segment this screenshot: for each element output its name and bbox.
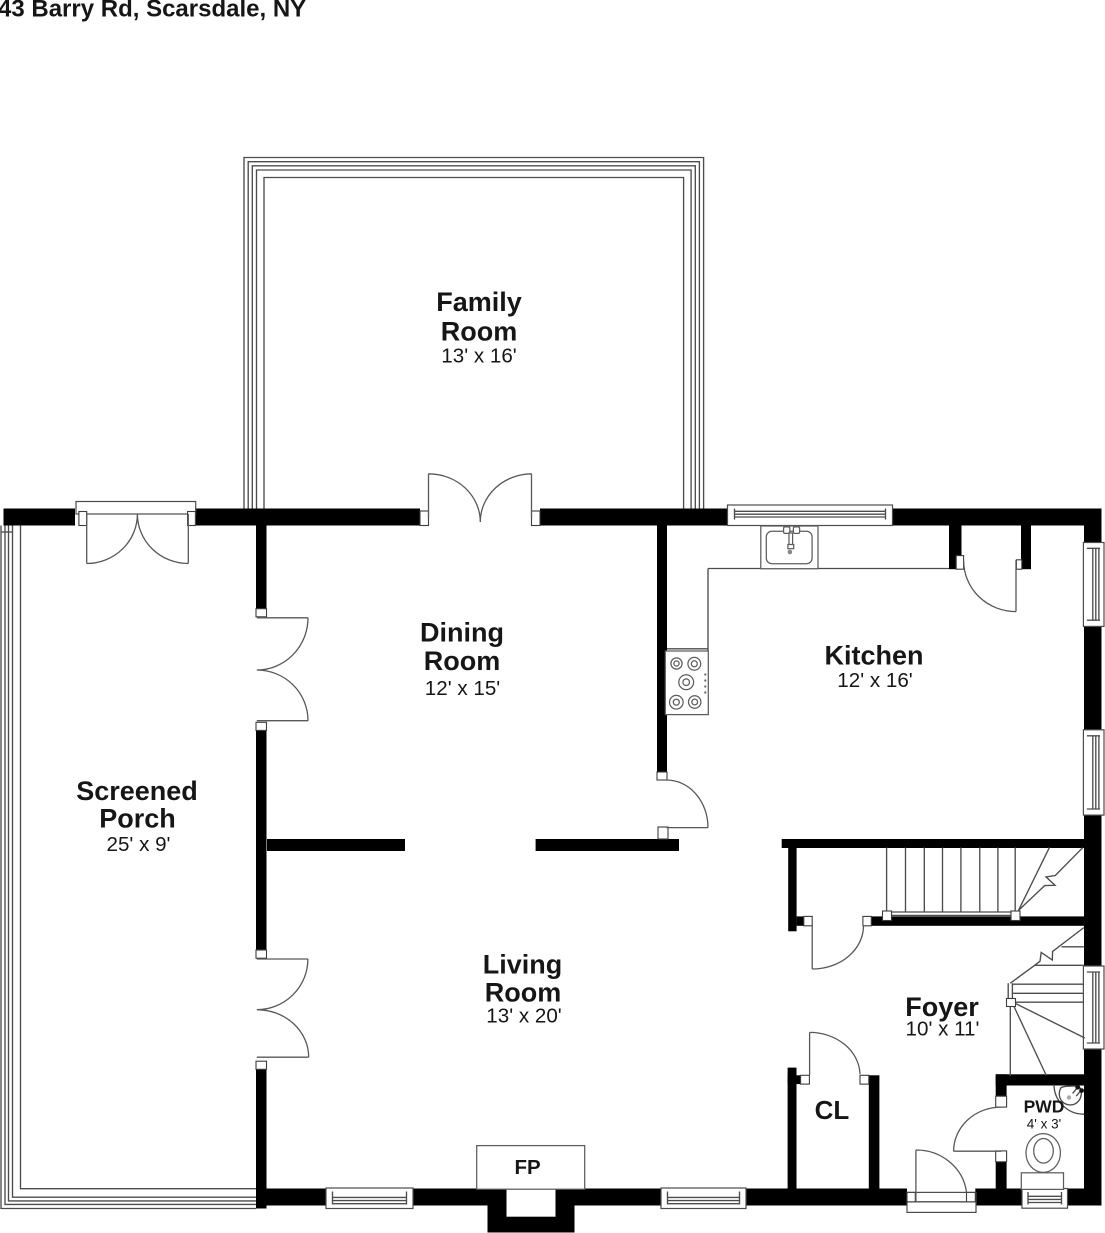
svg-text:Porch: Porch xyxy=(99,804,176,834)
svg-text:FP: FP xyxy=(514,1156,540,1179)
svg-text:PWD: PWD xyxy=(1024,1096,1065,1116)
svg-text:4' x 3': 4' x 3' xyxy=(1027,1117,1061,1132)
svg-text:Screened: Screened xyxy=(76,776,198,806)
svg-text:13' x 20': 13' x 20' xyxy=(486,1005,561,1028)
svg-text:Living: Living xyxy=(483,949,563,979)
svg-text:Family: Family xyxy=(436,287,522,317)
svg-text:12' x 15': 12' x 15' xyxy=(425,677,500,700)
svg-text:13' x 16': 13' x 16' xyxy=(441,345,516,368)
svg-text:10' x 11': 10' x 11' xyxy=(906,1018,980,1041)
svg-text:12' x 16': 12' x 16' xyxy=(837,669,912,692)
svg-text:Kitchen: Kitchen xyxy=(824,641,923,671)
svg-text:CL: CL xyxy=(815,1095,850,1125)
svg-text:Room: Room xyxy=(441,317,518,347)
svg-text:25' x 9': 25' x 9' xyxy=(107,833,171,856)
svg-text:Room: Room xyxy=(424,646,501,676)
svg-text:Room: Room xyxy=(485,978,562,1008)
svg-text:Dining: Dining xyxy=(420,618,504,648)
svg-text:43 Barry Rd, Scarsdale, NY: 43 Barry Rd, Scarsdale, NY xyxy=(0,0,306,23)
